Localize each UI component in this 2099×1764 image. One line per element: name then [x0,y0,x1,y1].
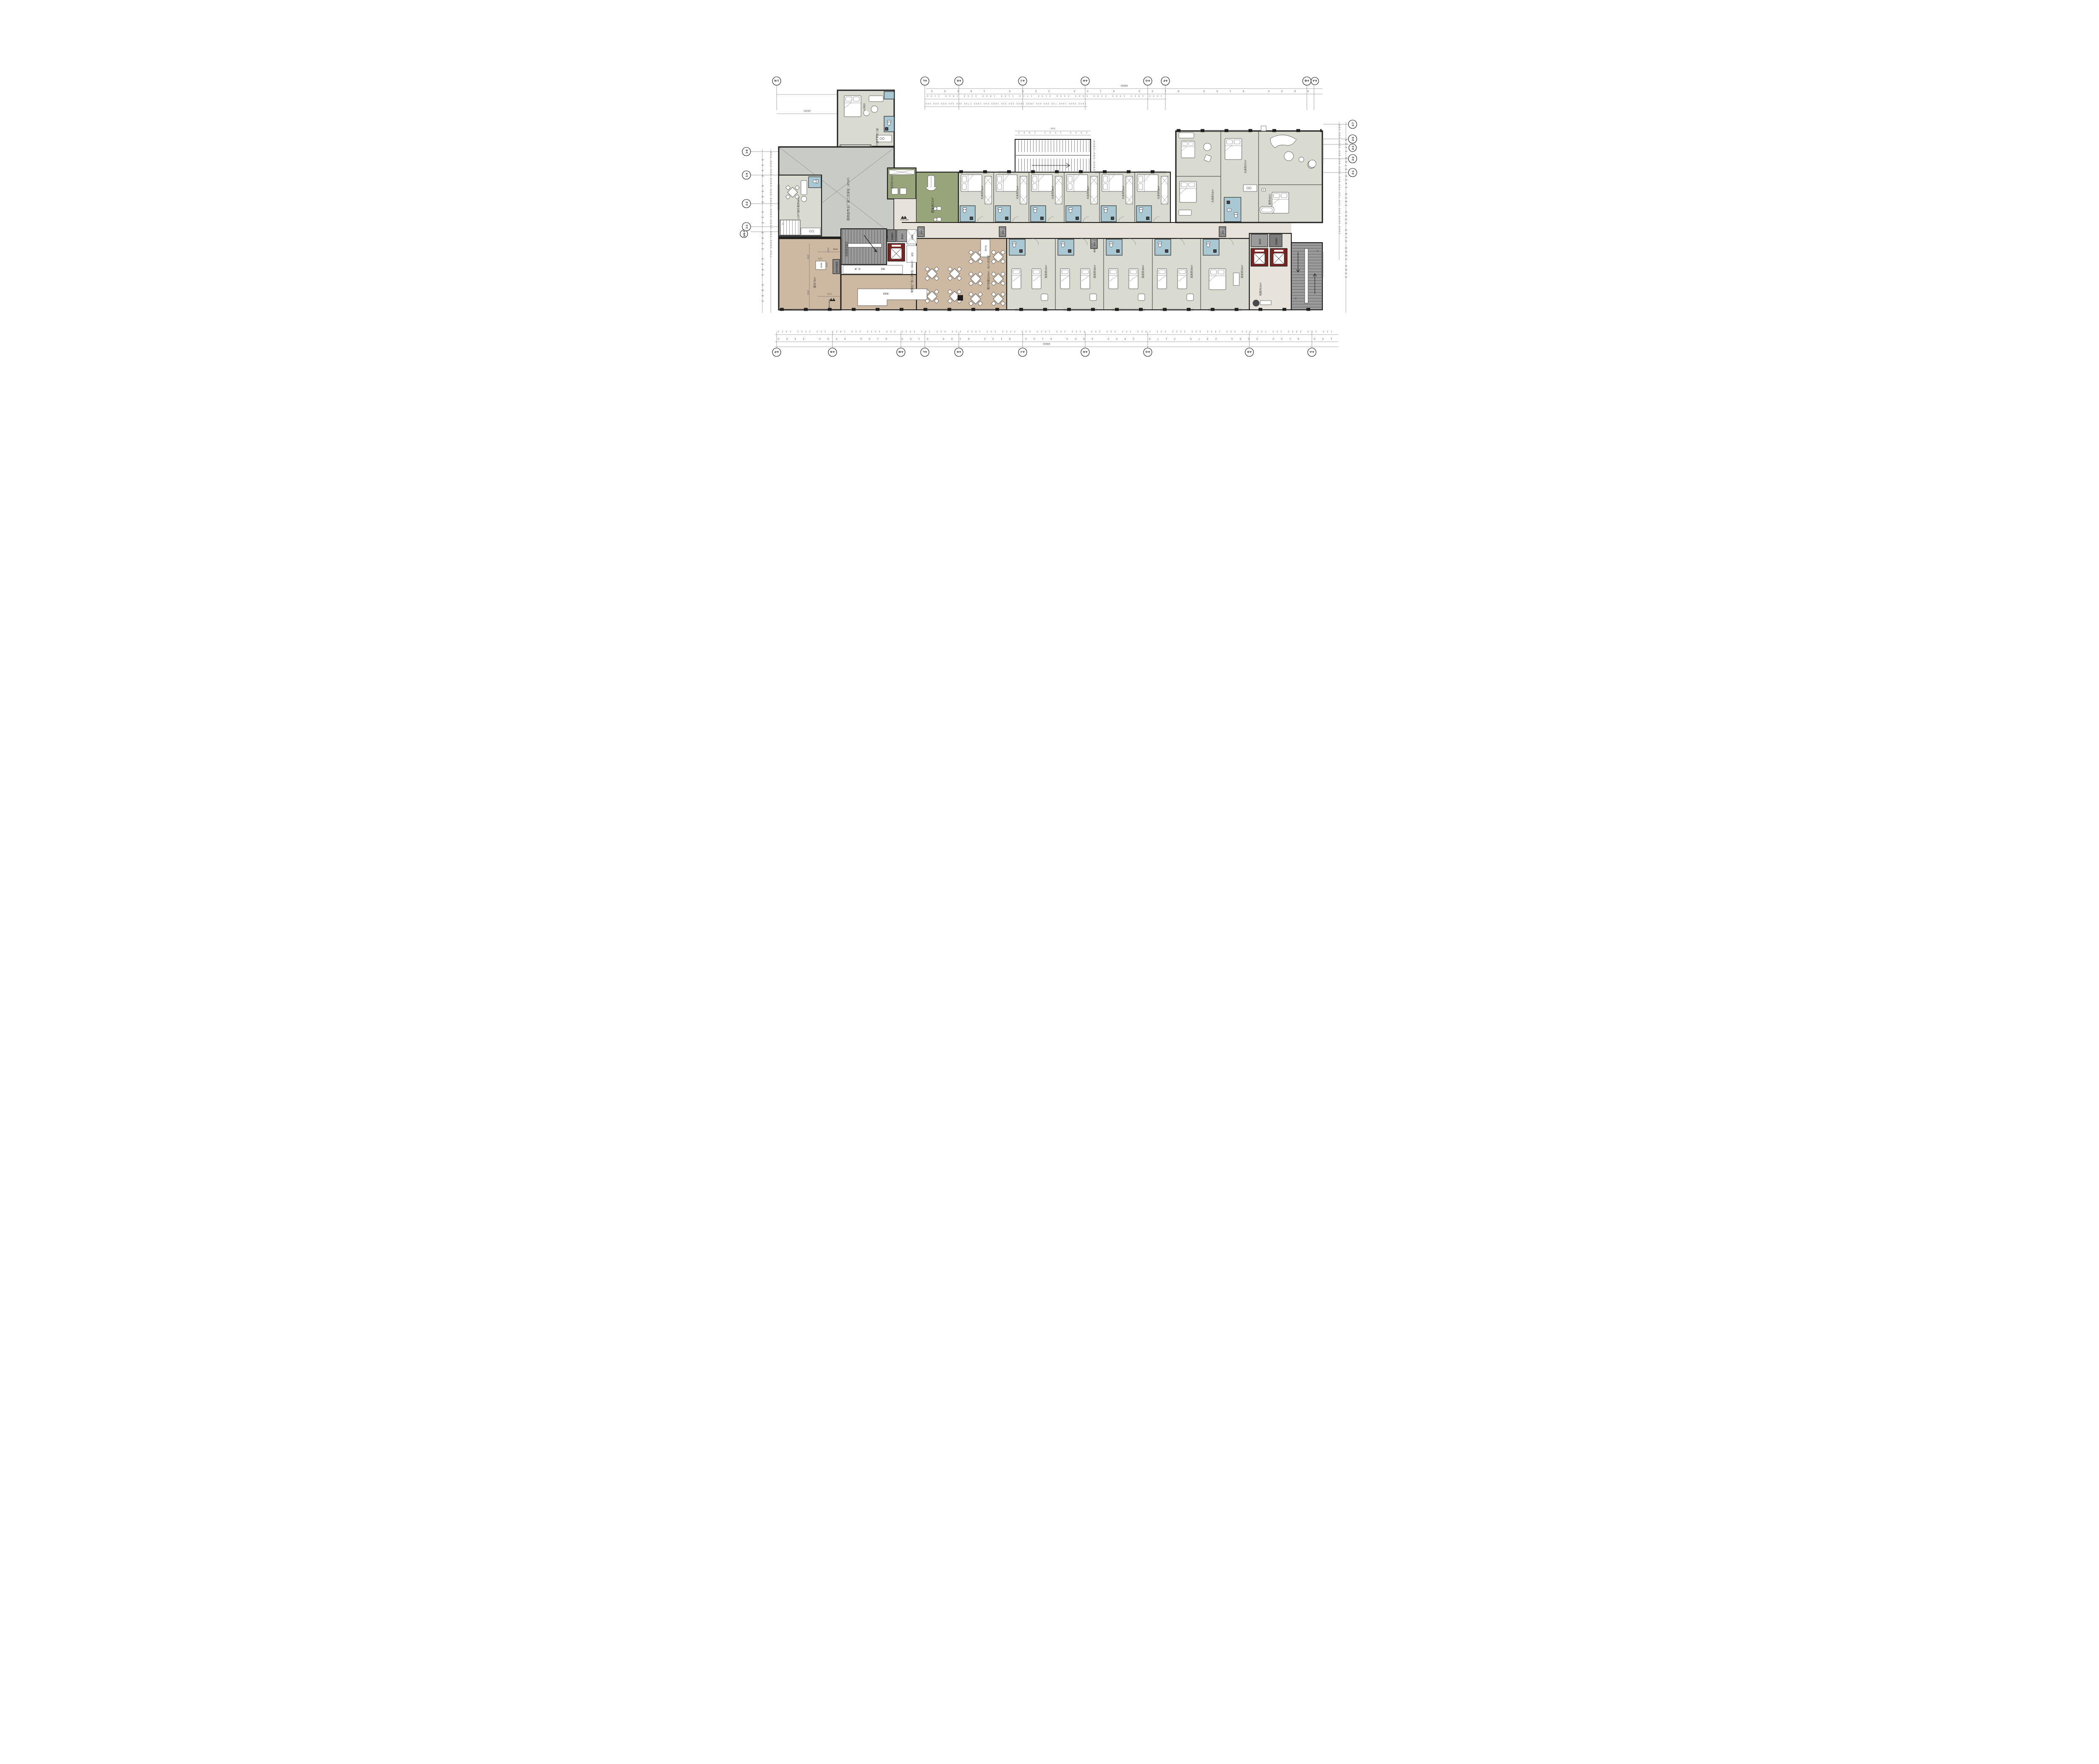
dim-left-outer: 3000 3600 3300 250 9800 6400 [762,159,764,302]
water-shaft-label: 水井 [1222,230,1225,234]
fire-duct-label: 消防排烟烟道 [835,262,838,273]
room-label: 大床房26m² [1157,186,1160,199]
stair-dim-segs: 2500 1500 2500 [1018,131,1087,133]
room-label: 双床房36m² [1141,265,1145,278]
drinks-label: 软饮 [911,252,914,256]
stair-dim-total: 6500 [1050,127,1055,129]
right-wing: 大床房33m² 大床房37m² 套房44m² [1176,126,1322,237]
grid-bubble-label: 2-2 [1352,157,1355,161]
grid-bubble-label: 4-M [898,350,903,353]
floor-plan-sheet: 1-N 4-L 4-K 4-J 4-H 4-G 4-F 4-B 4-A [738,0,1361,441]
grid-bubble-label: 4-L [923,79,927,82]
card-desk-label: 验卡台 [984,245,987,251]
sterilizer-label: 消毒柜 [911,234,914,240]
guest-rooms-upper: 大床房21m² 大床房21m² 大床房26m² 大床 [958,172,1170,222]
terrace: H/300 4900 2500 3560 1100 1100 3700 露台73… [779,238,841,310]
terrace-label: 露台73m² [813,277,817,288]
food-counter-label: 食品台 [882,292,888,295]
dim-right-inner: 1600 1800 900 100 700 400 800 1500 800 9… [1339,125,1341,234]
grid-bubble-label: 2-5 [1352,137,1355,141]
grid-bubble-label: 4-H [1083,350,1087,353]
grid-bubble-label: 4-G [1145,79,1150,82]
terrace-dim: 3560 [827,247,830,252]
room-label: 双床房36m² [1093,265,1097,278]
terrace-dim: 3700 [827,292,832,295]
grid-bubble-label: 2-1 [1352,170,1355,175]
pickup-label: 取餐区厂家二次深化（46m²） [911,259,914,293]
grid-bubble-label: 4-P [774,350,779,353]
external-stair: 6500 2500 1500 2500 1500 150 1500 [1015,127,1096,172]
grid-bubble-label: 4-N [830,350,835,353]
guest-rooms-lower: 双床房33m² 双床房36m² 双床房36m² 双床房36m² [1007,238,1249,310]
door-code-label: 2FM1 [832,248,838,250]
left-core: 机械通风竖井 排油烟井 配电井 消毒柜 软饮 汤、粥 面包 食品台 取餐区厂家二… [841,216,927,310]
exhaust-shaft-label: 排风 [1093,249,1096,253]
grid-bubble-label: 4-L [923,350,927,353]
right-core: 配电井 排油烟井 电梯间15m² 上 下 [1249,233,1322,310]
grid-bubble-label: 4-K [956,79,961,82]
stair-up-label: 上 [1295,297,1297,299]
power-shaft-label: 配电井 [901,233,904,239]
terrace-dim: 4900 [807,254,810,259]
laundry-room: 洗衣房10m² [887,168,916,199]
room-label: 双床房33m² [1241,265,1244,278]
room-label: 大床房21m² [981,186,984,199]
grid-bubble-label: 1-N [774,79,779,82]
grid-bubble-label: 1-1 [746,225,749,229]
mech-shaft-label: 机械通风竖井 [845,241,848,256]
terrace-dim: 1100 [818,257,822,259]
terrace-dim: 1100 [826,262,828,267]
room-label: 大床房37m² [1244,160,1247,173]
stair-up-label: 上 [782,222,784,225]
room-label: 套房44m² [1268,194,1272,205]
laundry-label: 洗衣房10m² [890,175,894,189]
h300-label: H/300 [820,262,822,268]
dim-bottom-fine: 100 500 5800 300 900 300 300 1800 300 33… [777,330,1332,332]
room-label: 双床房36m² [1190,265,1193,278]
grid-bubble-label: 4-H [1083,79,1087,82]
gym-label: 健身房21m² [931,197,934,213]
kitchen-note-label: 厨房由专业厂家二次深化（47m²） [846,176,850,221]
terrace-dim: 2500 [807,290,810,295]
grid-bubble-label: 2-3 [1352,146,1355,150]
grid-bubble-label: 4-K [956,350,961,353]
water-shaft-label: 水井 [1002,230,1005,234]
grid-bubble-label: 1-4 [746,173,749,177]
room-label: 大床房21m² [1122,186,1125,199]
soup-counter-label: 汤、粥 [854,267,860,270]
room-label: 大床房21m² [1016,186,1019,199]
dim-total-bottom: 69600 [1042,342,1050,345]
smoke-shaft-label: 排油烟井 [1275,237,1278,245]
room-label: 双床房33m² [1044,265,1048,278]
dim-bottom-mid: 100 8100 3550 2375 2175 2800 4600 8100 8… [777,337,1332,340]
grid-bubble-label: 4-F [1163,79,1167,82]
loft-suite-label: LOFT娱乐套房66m² [797,196,800,219]
grid-bubble-label: 4-G [1145,350,1150,353]
room-label: 大床房26m² [1086,186,1090,199]
smoke-shaft-label: 排油烟井 [891,232,894,240]
water-shaft-label: 水井 [920,230,923,234]
dim-top-spans: 4600 8100 8100 8100 2250 18000 [931,89,1309,92]
floor-plan-drawing: 1-N 4-L 4-K 4-J 4-H 4-G 4-F 4-B 4-A [738,0,1361,441]
grid-bubble-label: 1-2 [746,202,749,206]
extinguisher-label: MF/ABC5 [828,299,830,308]
grid-bubble-label: 4-B [1304,79,1309,82]
left-wing: 上 LOFT娱乐套房66m² 厨房由专业厂家二次深化（47m²） [779,147,894,237]
grid-bubble-label: 2-7 [1352,122,1355,126]
dim-right-outer: 3300 1200 3100 3300 2850 1420 3700 1420 [1345,139,1348,278]
dim-block-left: 19000 [803,109,811,112]
grid-bubble-label: 4-J [1020,79,1024,82]
dim-top-segs: 1400 1800 1400 2200 5900 3300 3100 1700 … [926,94,1162,97]
dim-top-fine: 1400 1800 1400 700 900 600 1800 1800 550… [925,102,1086,105]
dining-label: 餐厅就餐区94m²、40人/会议室 [987,255,990,290]
room-label: 大床房33m² [1211,189,1214,203]
grid-bubble-label: 4-A [1309,350,1314,353]
water-shaft-label: 水井 [1093,242,1096,246]
elevator-lobby-label: 电梯间15m² [1259,283,1262,296]
level-label: +2650 [864,103,866,110]
dining-area: 验卡台 餐厅就餐区94m²、40人/会议室 水井 水井 [916,227,1007,310]
bread-counter-label: 面包 [881,267,885,270]
grid-bubble-label: 1/4-3 [743,230,746,237]
grid-bubble-label: 4-J [1020,350,1024,353]
grid-bubble-label: 1-6 [746,149,749,154]
power-shaft-label: 配电井 [1259,238,1261,244]
grid-bubble-label: 4-A [1312,79,1317,82]
extinguisher-label: MF/ABC5 [900,219,908,221]
room-label: 大床房26m² [1051,186,1055,199]
dim-total-top: 69600 [1120,84,1128,87]
grid-bubble-label: 4-D [1247,350,1251,353]
